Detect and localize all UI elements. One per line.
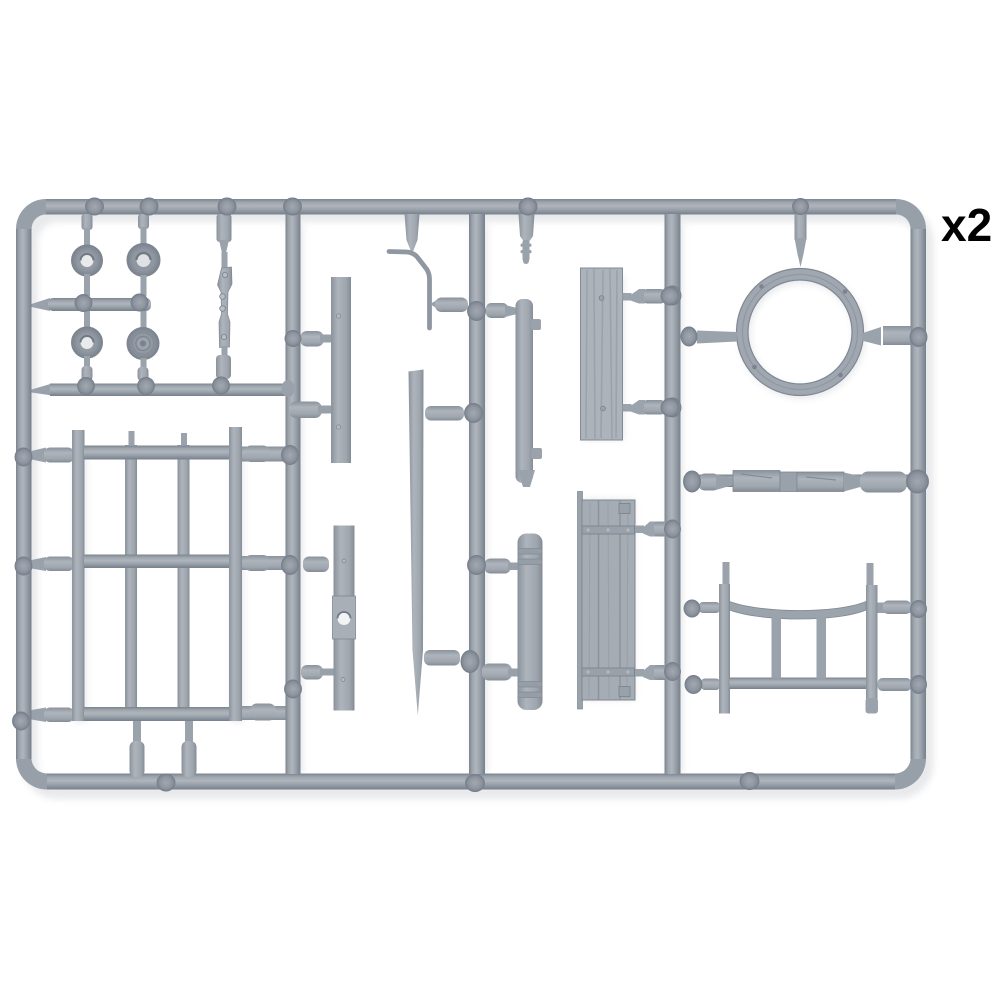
svg-text:x2: x2 [941,199,992,251]
